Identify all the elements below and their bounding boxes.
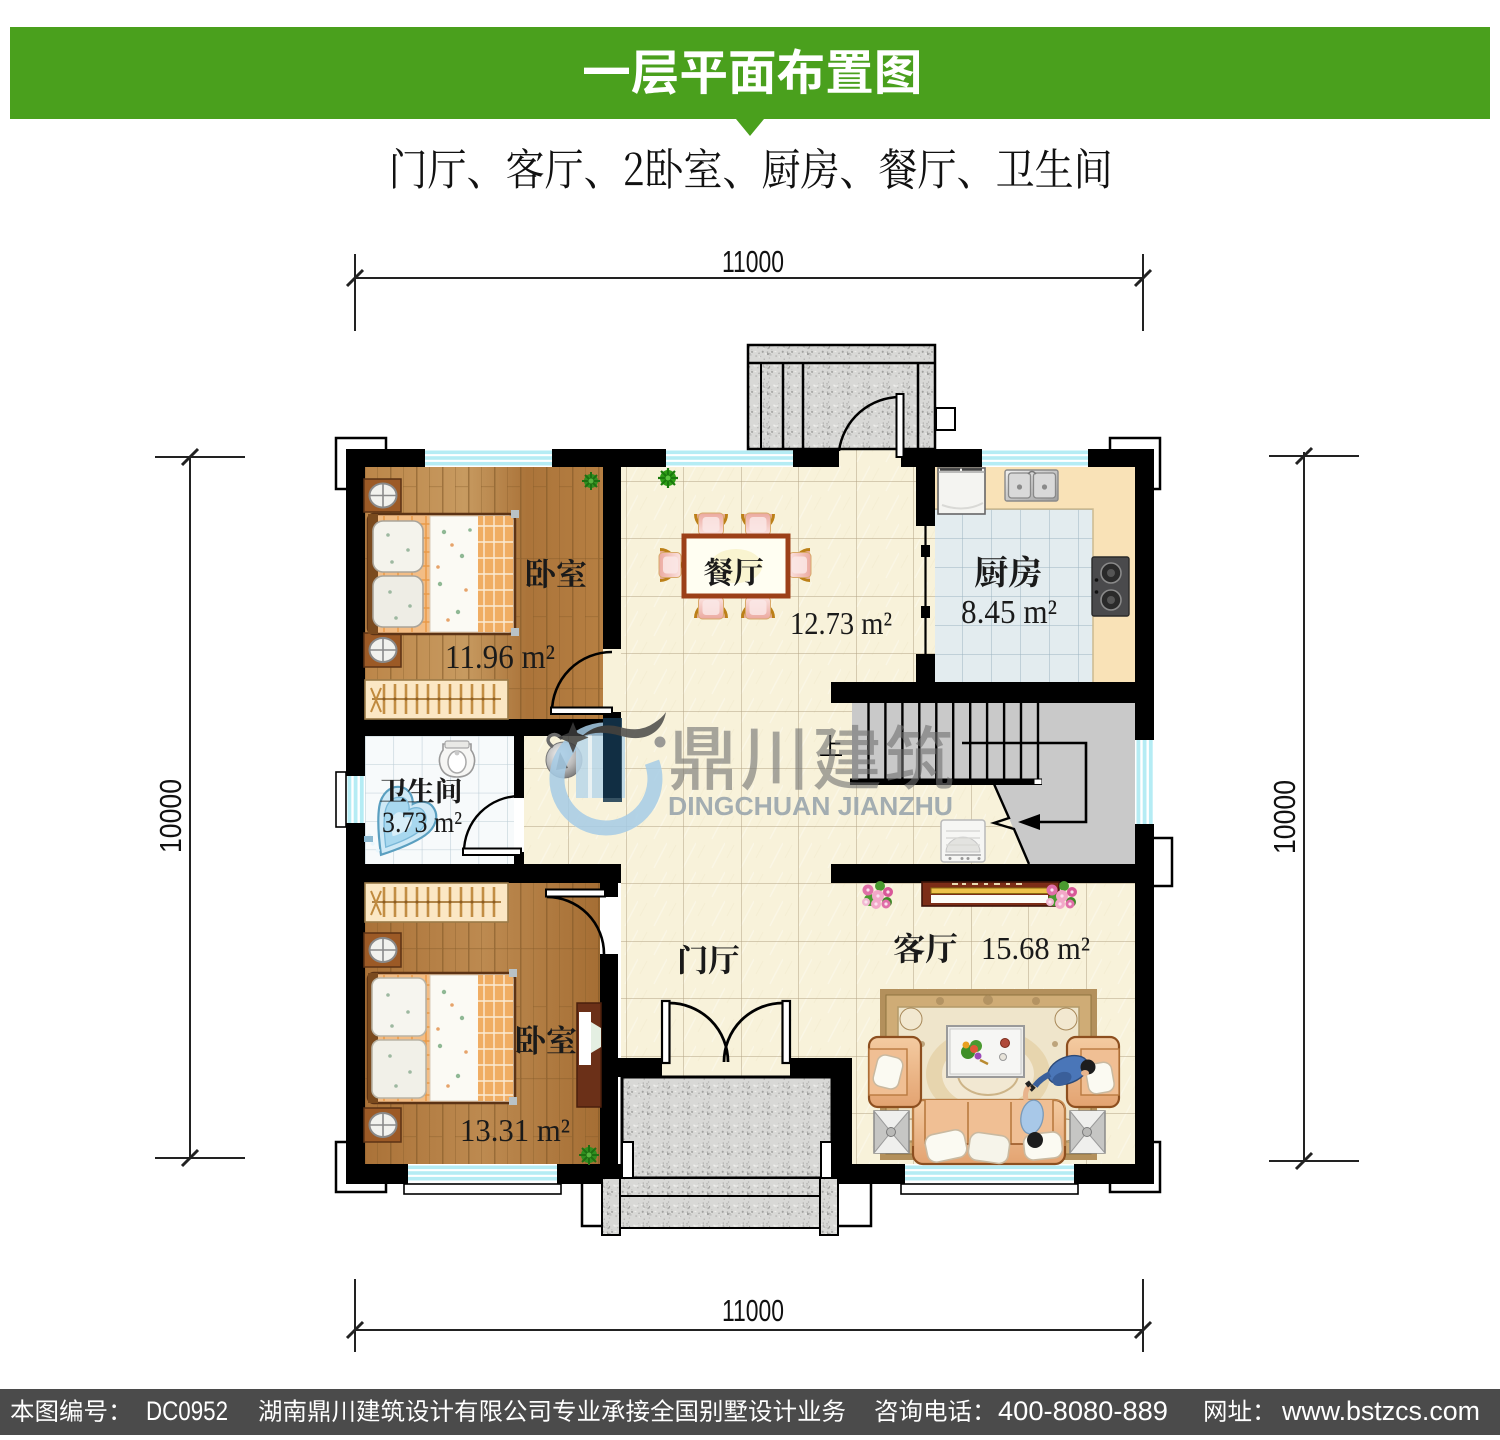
svg-text:10000: 10000 bbox=[1267, 780, 1302, 854]
svg-text:3.73 m²: 3.73 m² bbox=[382, 806, 462, 839]
svg-text:11000: 11000 bbox=[722, 1293, 784, 1328]
svg-text:400-8080-889: 400-8080-889 bbox=[998, 1396, 1168, 1426]
svg-text:11.96 m²: 11.96 m² bbox=[445, 639, 555, 676]
svg-text:DC0952: DC0952 bbox=[146, 1396, 228, 1426]
svg-text:DINGCHUAN JIANZHU: DINGCHUAN JIANZHU bbox=[668, 791, 953, 821]
svg-text:15.68 m²: 15.68 m² bbox=[981, 930, 1090, 966]
svg-text:10000: 10000 bbox=[153, 779, 188, 853]
svg-text:13.31 m²: 13.31 m² bbox=[460, 1112, 570, 1148]
svg-text:12.73 m²: 12.73 m² bbox=[790, 605, 892, 641]
svg-text:www.bstzcs.com: www.bstzcs.com bbox=[1281, 1396, 1480, 1426]
svg-text:8.45 m²: 8.45 m² bbox=[961, 594, 1057, 631]
svg-text:11000: 11000 bbox=[722, 244, 784, 279]
